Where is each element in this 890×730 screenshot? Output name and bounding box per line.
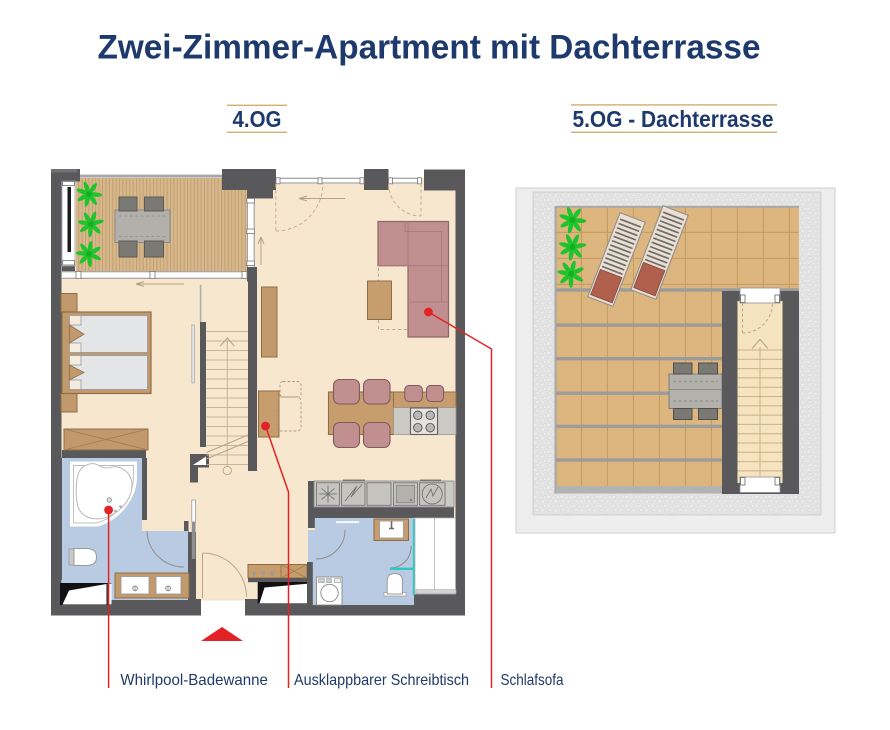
svg-text:5.OG - Dachterrasse: 5.OG - Dachterrasse (573, 106, 774, 132)
svg-text:Zwei-Zimmer-Apartment mit Dach: Zwei-Zimmer-Apartment mit Dachterrasse (98, 29, 761, 67)
svg-text:Schlafsofa: Schlafsofa (501, 672, 564, 689)
svg-text:4.OG: 4.OG (233, 106, 282, 132)
svg-text:Ausklappbarer Schreibtisch: Ausklappbarer Schreibtisch (294, 672, 469, 689)
svg-text:Whirlpool-Badewanne: Whirlpool-Badewanne (120, 672, 268, 689)
